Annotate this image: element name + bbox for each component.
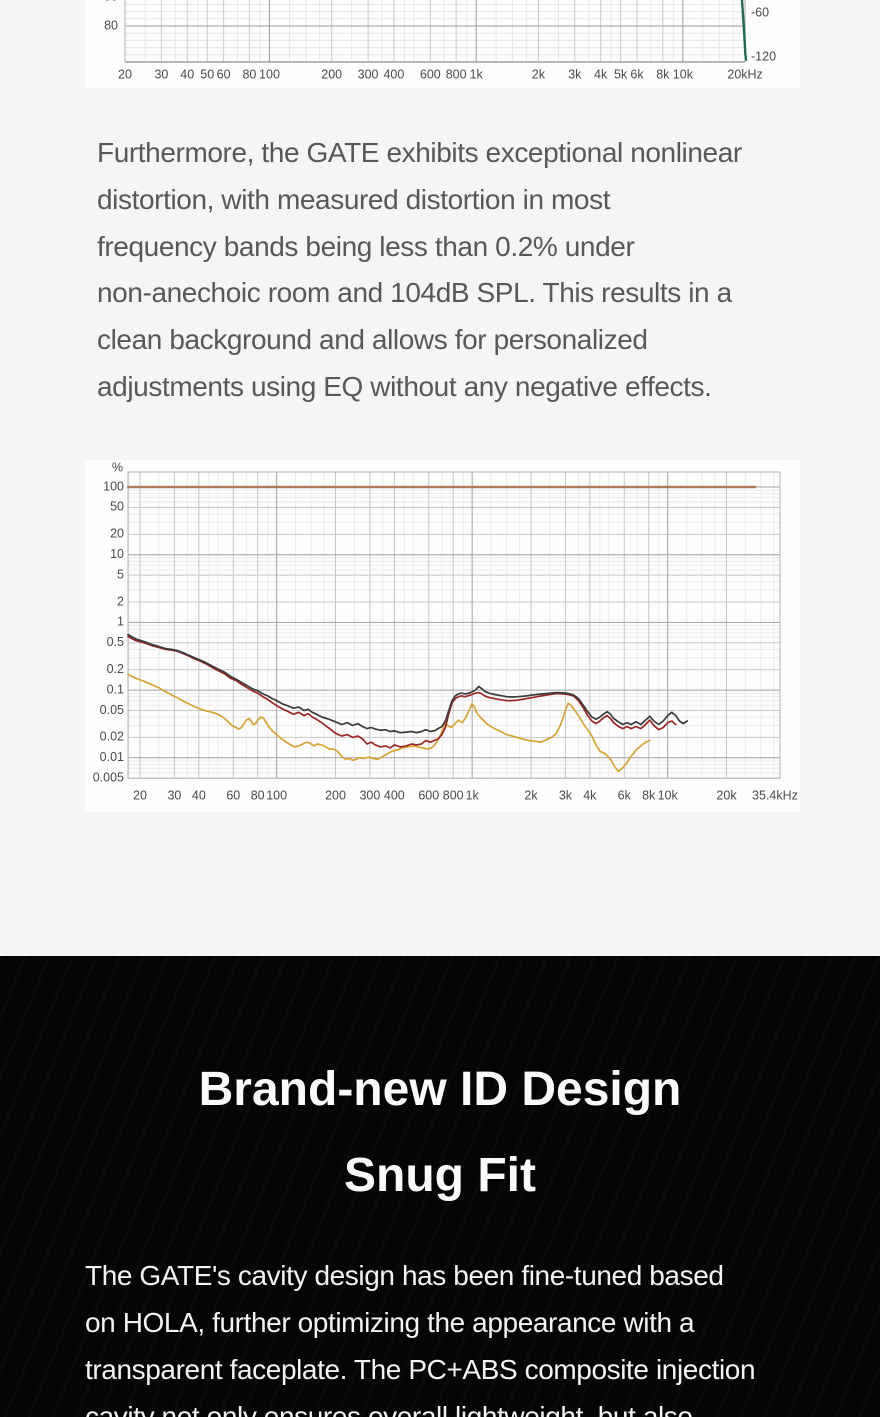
svg-text:0.5: 0.5 [107, 635, 124, 649]
frequency-response-chart: 2030405060801002003004006008001k2k3k4k5k… [85, 0, 800, 88]
svg-text:800: 800 [446, 67, 467, 81]
svg-text:10: 10 [110, 547, 124, 561]
svg-text:1k: 1k [466, 788, 480, 802]
series-distortion-red [128, 637, 676, 748]
design-heading-line1: Brand-new ID Design [0, 1062, 880, 1118]
svg-text:20: 20 [133, 788, 147, 802]
svg-text:600: 600 [418, 788, 439, 802]
svg-text:100: 100 [259, 67, 280, 81]
svg-text:35.4kHz: 35.4kHz [752, 788, 798, 802]
svg-text:0.01: 0.01 [100, 750, 124, 764]
svg-text:600: 600 [420, 67, 441, 81]
grid [125, 0, 745, 62]
svg-text:60: 60 [217, 67, 231, 81]
svg-text:6k: 6k [630, 67, 644, 81]
svg-text:4k: 4k [583, 788, 597, 802]
svg-text:1k: 1k [470, 67, 484, 81]
svg-text:80: 80 [242, 67, 256, 81]
svg-text:100: 100 [266, 788, 287, 802]
svg-text:20k: 20k [716, 788, 737, 802]
svg-text:40: 40 [180, 67, 194, 81]
svg-text:20: 20 [118, 67, 132, 81]
svg-text:0.2: 0.2 [107, 662, 124, 676]
svg-text:85: 85 [104, 0, 118, 3]
svg-text:100: 100 [103, 479, 124, 493]
svg-text:4k: 4k [594, 67, 608, 81]
y-axis-unit-label: % [112, 460, 123, 474]
thd-chart-panel: %1005020105210.50.20.10.050.020.010.0052… [85, 460, 800, 812]
svg-text:-60: -60 [751, 5, 769, 19]
svg-text:300: 300 [359, 788, 380, 802]
distortion-paragraph: Furthermore, the GATE exhibits exception… [97, 130, 742, 411]
svg-text:200: 200 [321, 67, 342, 81]
svg-text:5k: 5k [614, 67, 628, 81]
measurements-section: 2030405060801002003004006008001k2k3k4k5k… [0, 0, 880, 956]
product-page: 2030405060801002003004006008001k2k3k4k5k… [0, 0, 880, 1417]
spl-chart-panel: 2030405060801002003004006008001k2k3k4k5k… [85, 0, 800, 88]
design-paragraph: The GATE's cavity design has been fine-t… [85, 1252, 755, 1417]
svg-text:400: 400 [383, 67, 404, 81]
svg-text:80: 80 [104, 18, 118, 32]
svg-text:60: 60 [226, 788, 240, 802]
svg-text:40: 40 [192, 788, 206, 802]
svg-text:3k: 3k [568, 67, 582, 81]
svg-text:50: 50 [110, 500, 124, 514]
svg-text:20kHz: 20kHz [727, 67, 762, 81]
series-distortion-yellow [128, 675, 650, 772]
svg-text:20: 20 [110, 527, 124, 541]
svg-text:2k: 2k [524, 788, 538, 802]
svg-text:300: 300 [358, 67, 379, 81]
svg-text:-120: -120 [751, 49, 776, 63]
svg-text:3k: 3k [559, 788, 573, 802]
grid [128, 472, 780, 778]
svg-text:0.05: 0.05 [100, 703, 124, 717]
svg-text:400: 400 [384, 788, 405, 802]
svg-text:1: 1 [117, 615, 124, 629]
svg-text:8k: 8k [656, 67, 670, 81]
design-section: Brand-new ID Design Snug Fit The GATE's … [0, 956, 880, 1417]
svg-text:2: 2 [117, 594, 124, 608]
svg-text:10k: 10k [658, 788, 679, 802]
design-heading-line2: Snug Fit [0, 1148, 880, 1204]
svg-text:8k: 8k [642, 788, 656, 802]
svg-text:6k: 6k [618, 788, 632, 802]
svg-text:2k: 2k [532, 67, 546, 81]
svg-text:200: 200 [325, 788, 346, 802]
svg-text:5: 5 [117, 567, 124, 581]
svg-text:30: 30 [154, 67, 168, 81]
svg-text:50: 50 [200, 67, 214, 81]
svg-text:10k: 10k [673, 67, 694, 81]
svg-text:0.005: 0.005 [93, 770, 124, 784]
svg-text:0.02: 0.02 [100, 730, 124, 744]
svg-text:0.1: 0.1 [107, 682, 124, 696]
svg-text:800: 800 [443, 788, 464, 802]
svg-text:80: 80 [251, 788, 265, 802]
distortion-chart: %1005020105210.50.20.10.050.020.010.0052… [85, 460, 800, 812]
svg-text:30: 30 [167, 788, 181, 802]
